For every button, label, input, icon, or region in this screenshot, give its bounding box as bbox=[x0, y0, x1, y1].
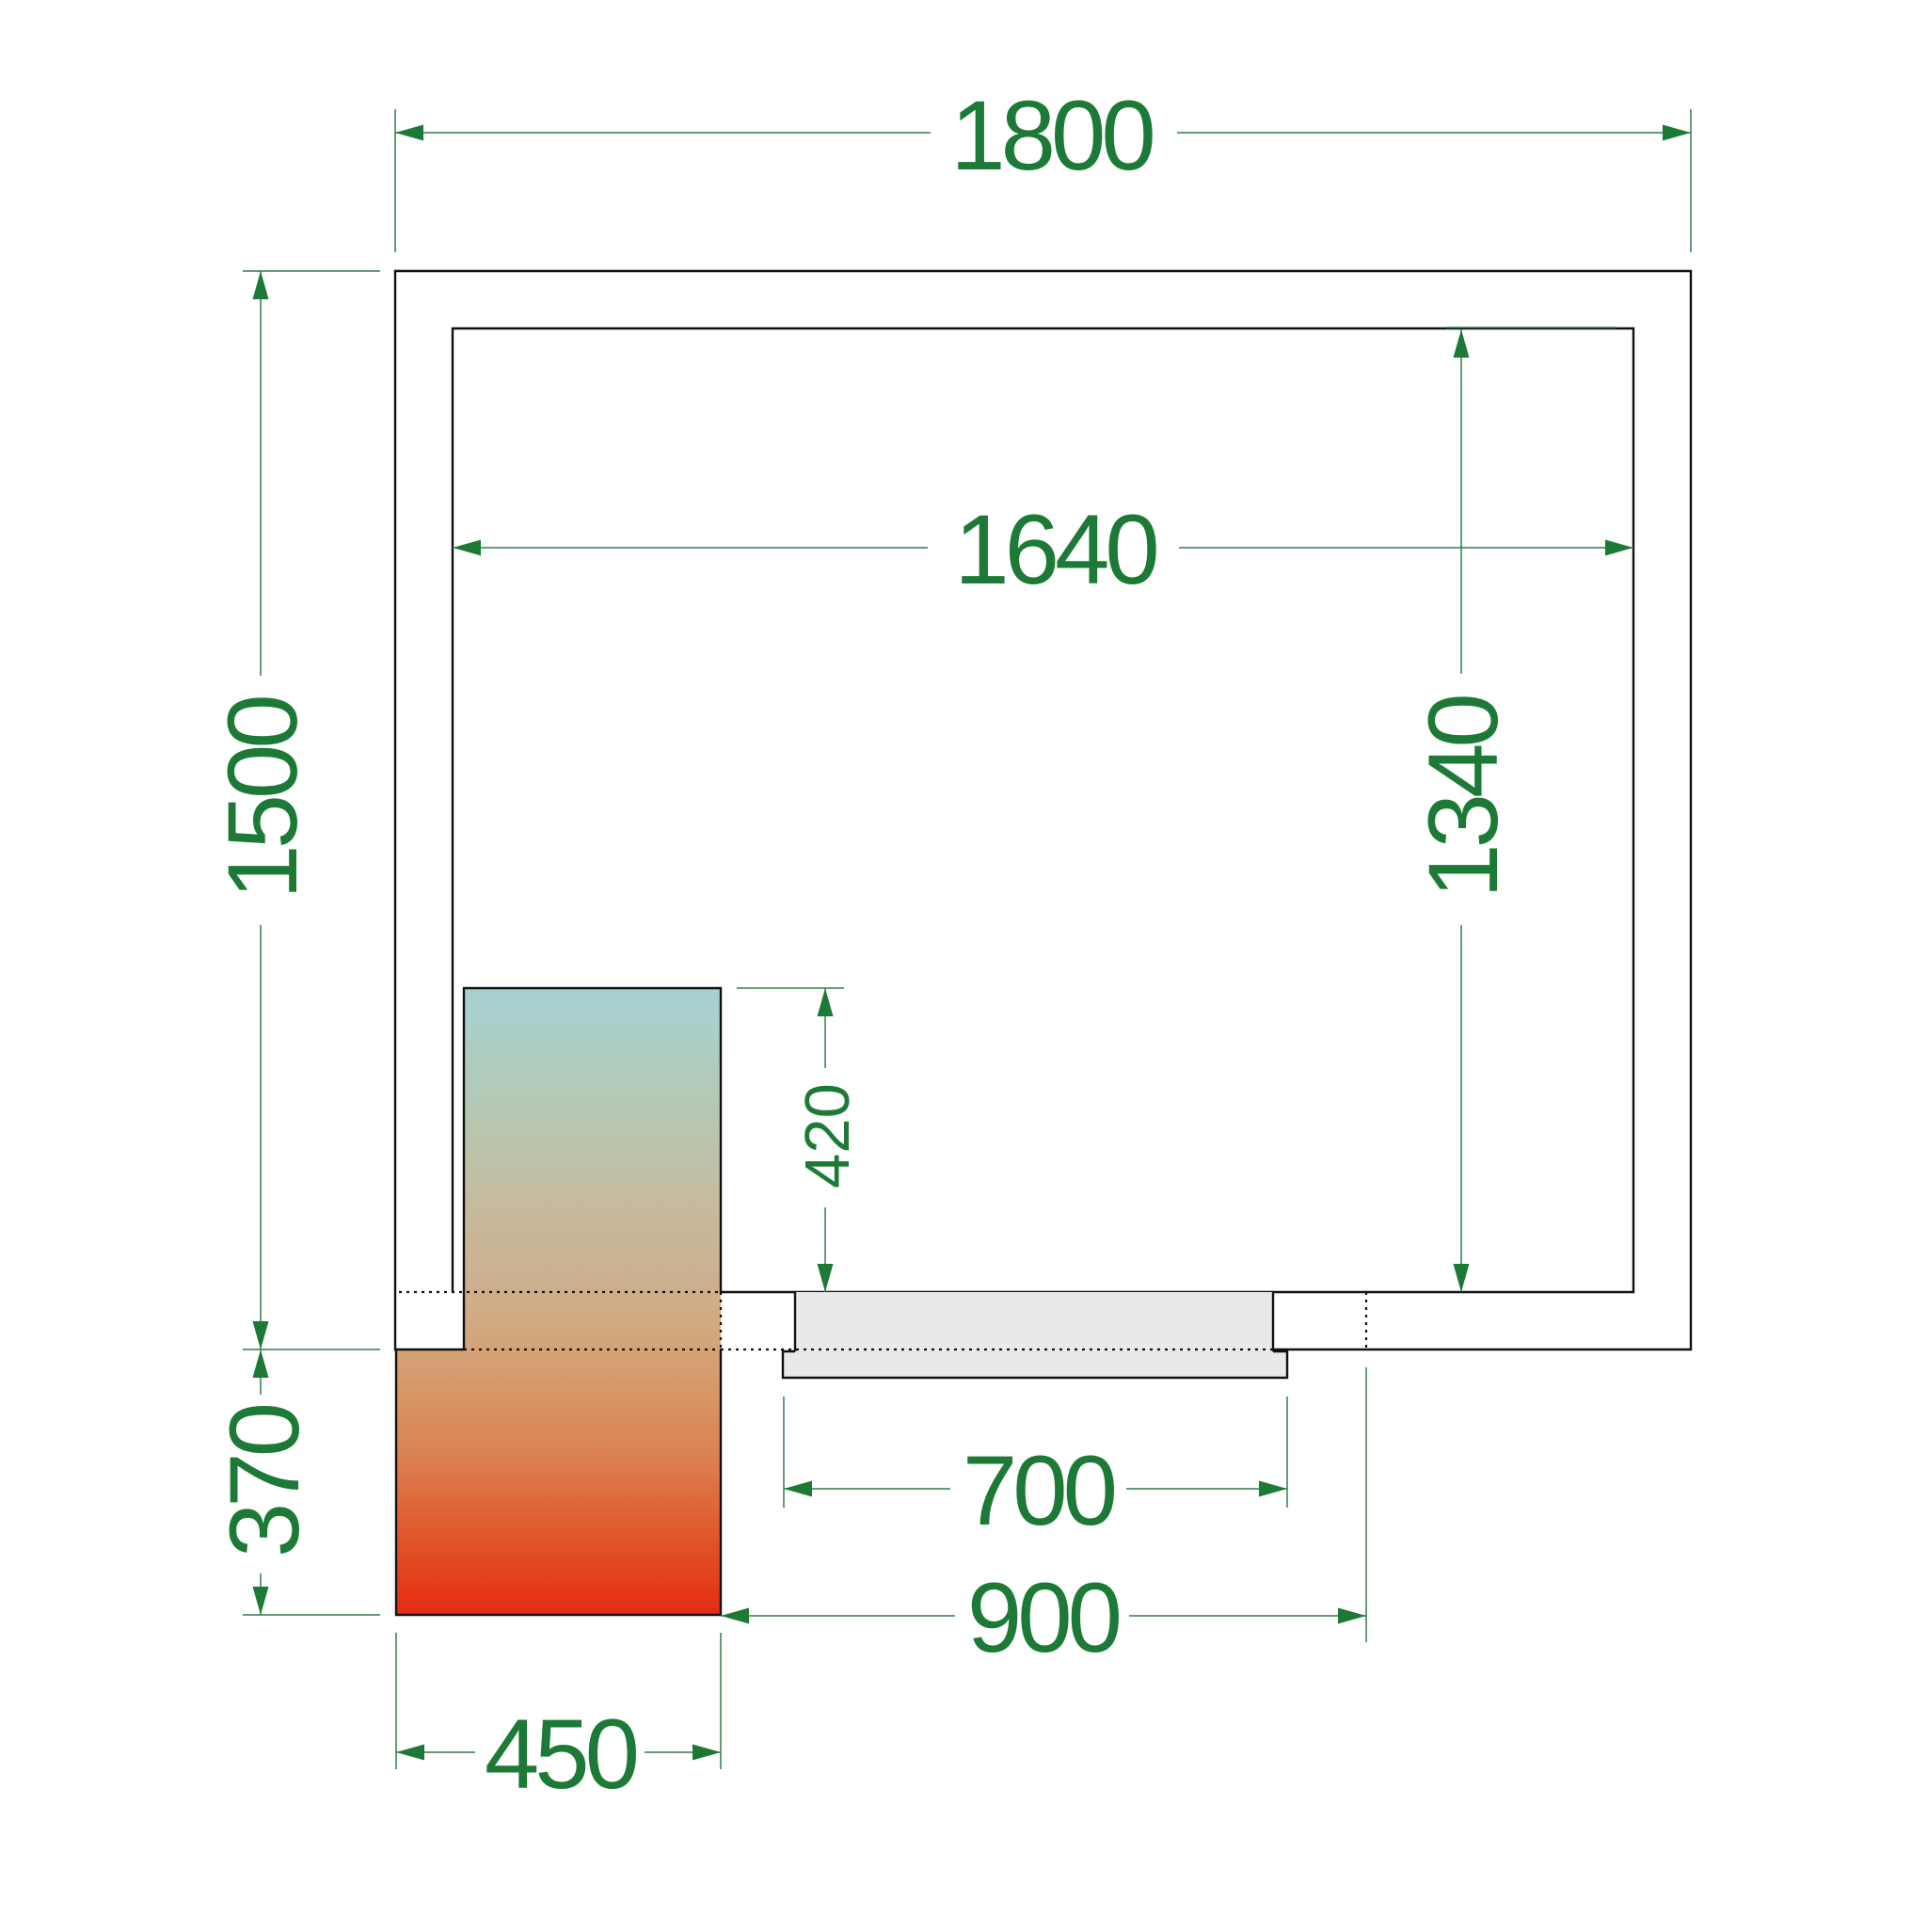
svg-text:1800: 1800 bbox=[950, 81, 1153, 191]
svg-text:900: 900 bbox=[967, 1563, 1120, 1673]
svg-text:700: 700 bbox=[963, 1436, 1115, 1546]
svg-text:450: 450 bbox=[485, 1700, 637, 1810]
svg-text:1500: 1500 bbox=[208, 697, 318, 900]
svg-text:1640: 1640 bbox=[954, 495, 1156, 605]
svg-text:1340: 1340 bbox=[1409, 696, 1519, 899]
svg-text:370: 370 bbox=[210, 1405, 320, 1557]
svg-text:420: 420 bbox=[792, 1083, 863, 1189]
